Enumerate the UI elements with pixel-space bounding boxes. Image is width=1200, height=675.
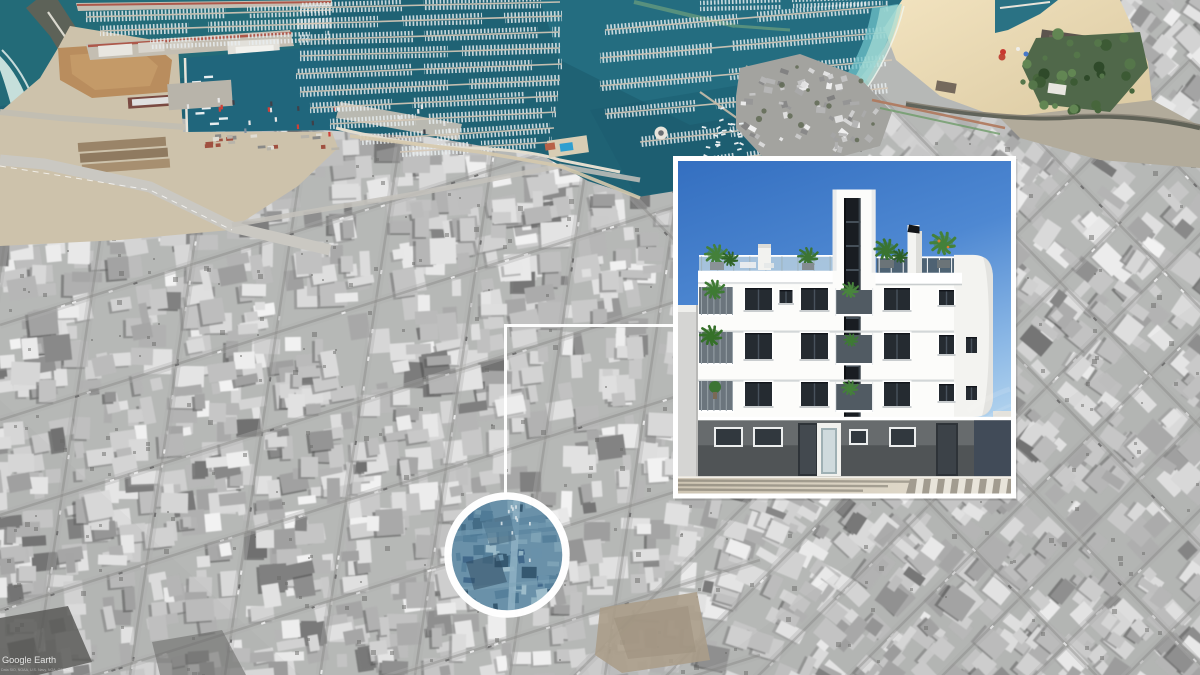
svg-text:Data SIO, NOAA, U.S. Navy, NGA: Data SIO, NOAA, U.S. Navy, NGA, GEBCO <box>1 668 71 672</box>
svg-text:Google Earth: Google Earth <box>2 655 56 665</box>
